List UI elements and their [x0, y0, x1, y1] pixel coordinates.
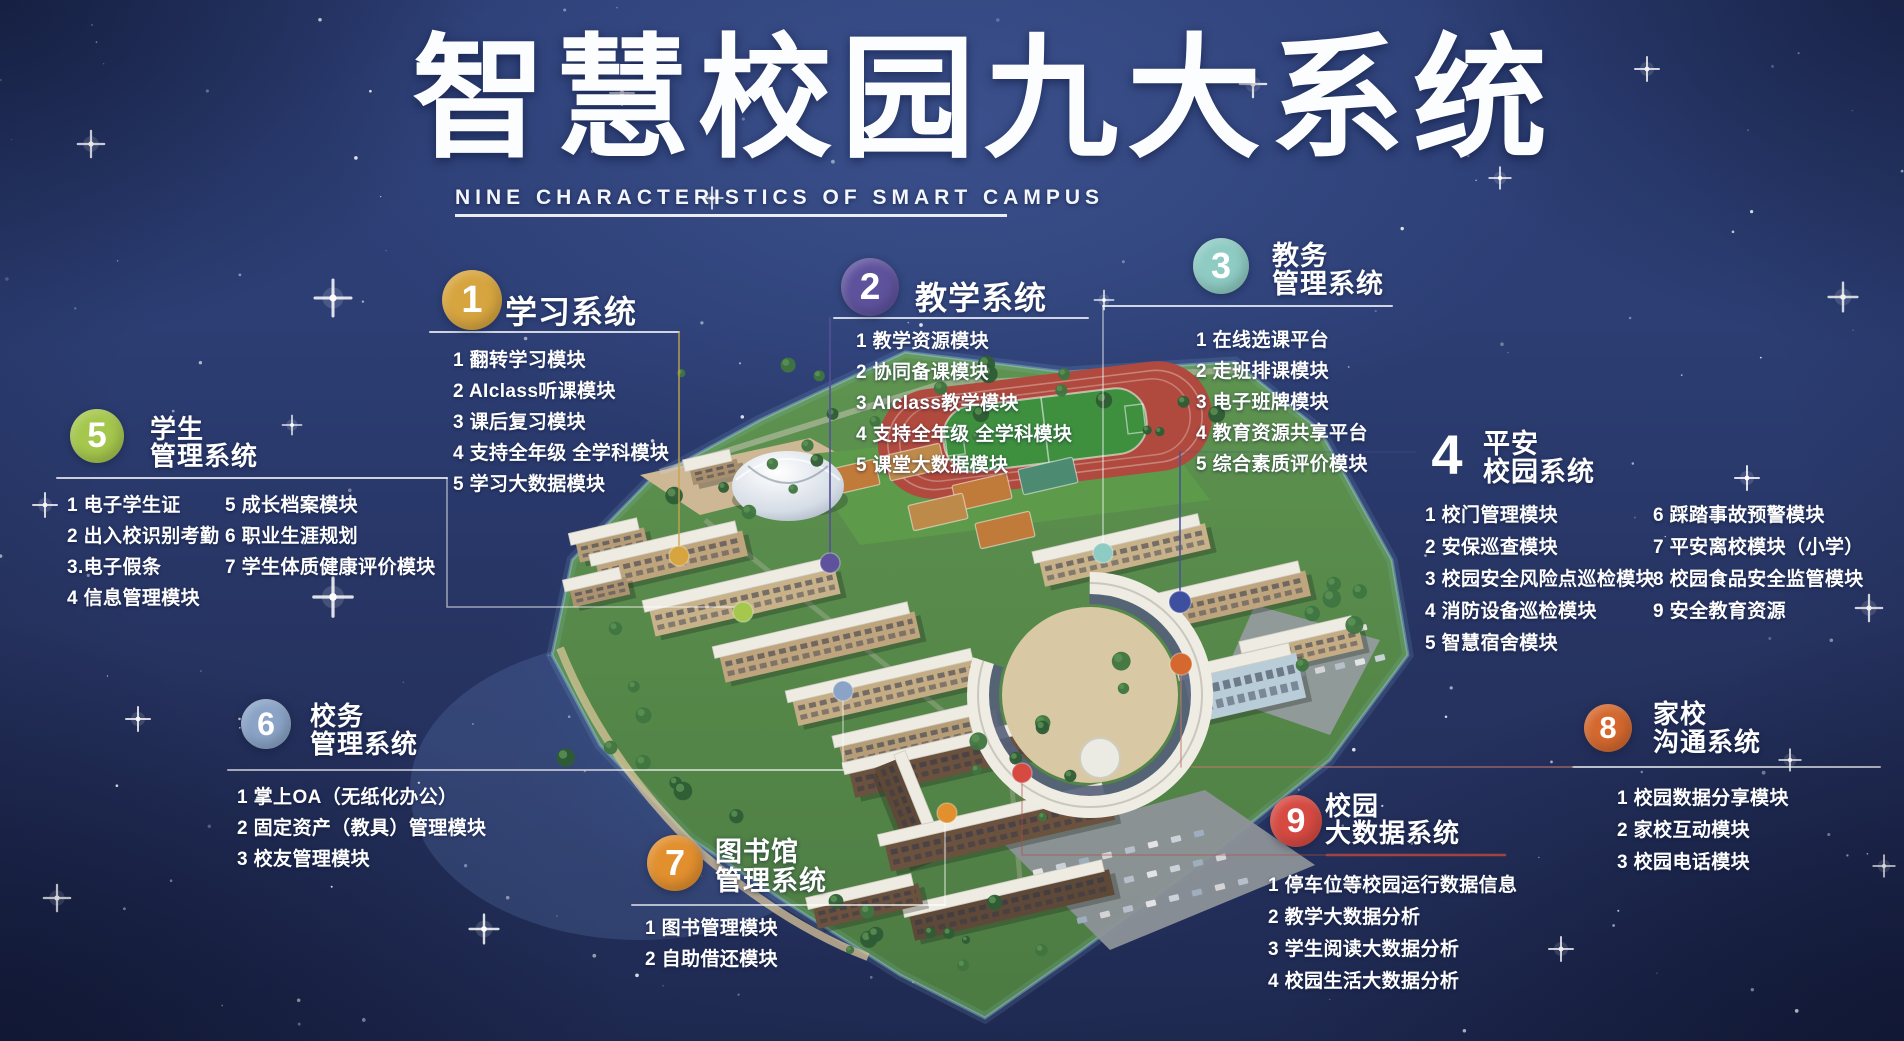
- module-item: 6 职业生涯规划: [225, 521, 436, 552]
- module-item: 8 校园食品安全监管模块: [1653, 564, 1864, 596]
- system-5-badge: 5: [70, 409, 124, 463]
- system-8-title: 家校沟通系统: [1653, 700, 1761, 756]
- module-item: 5 课堂大数据模块: [856, 450, 1072, 481]
- module-item: 7 学生体质健康评价模块: [225, 552, 436, 583]
- module-item: 3 AIclass教学模块: [856, 388, 1072, 419]
- system-7-badge: 7: [647, 835, 703, 891]
- system-7-modules: 1 图书管理模块2 自助借还模块: [645, 913, 778, 975]
- module-item: 7 平安离校模块（小学）: [1653, 532, 1864, 564]
- module-item: 2 家校互动模块: [1617, 815, 1789, 847]
- page-subtitle: NINE CHARACTERISTICS OF SMART CAMPUS: [455, 186, 1007, 210]
- system-4-title: 平安校园系统: [1483, 430, 1595, 486]
- module-item: 4 信息管理模块: [67, 583, 219, 614]
- module-item: 2 自助借还模块: [645, 944, 778, 975]
- system-6-title: 校务管理系统: [310, 702, 418, 758]
- system-1-badge: 1: [442, 270, 502, 330]
- module-item: 3 学生阅读大数据分析: [1268, 934, 1517, 966]
- module-item: 2 固定资产（教具）管理模块: [237, 813, 486, 844]
- map-marker-4: [1169, 591, 1191, 613]
- module-item: 2 协同备课模块: [856, 357, 1072, 388]
- system-8-badge: 8: [1584, 704, 1632, 752]
- map-marker-9: [1012, 763, 1032, 783]
- map-marker-7: [937, 803, 957, 823]
- module-item: 5 智慧宿舍模块: [1425, 628, 1655, 660]
- system-4-badge: 4: [1425, 424, 1469, 484]
- system-2-title: 教学系统: [915, 273, 1047, 319]
- module-item: 3 校园安全风险点巡检模块: [1425, 564, 1655, 596]
- module-item: 1 电子学生证: [67, 490, 219, 521]
- system-2-modules: 1 教学资源模块2 协同备课模块3 AIclass教学模块4 支持全年级 全学科…: [856, 326, 1072, 481]
- module-item: 2 出入校识别考勤: [67, 521, 219, 552]
- system-3-badge: 3: [1193, 238, 1249, 294]
- system-1-title: 学习系统: [505, 287, 637, 333]
- module-item: 3 校友管理模块: [237, 844, 486, 875]
- system-7-title: 图书馆管理系统: [715, 838, 827, 896]
- map-marker-3: [1093, 543, 1113, 563]
- round-hall: [1080, 738, 1120, 778]
- module-item: 2 安保巡查模块: [1425, 532, 1655, 564]
- module-item: 1 图书管理模块: [645, 913, 778, 944]
- module-item: 1 在线选课平台: [1196, 325, 1368, 356]
- system-6-badge: 6: [241, 699, 291, 749]
- module-item: 1 翻转学习模块: [453, 345, 669, 376]
- module-item: 2 教学大数据分析: [1268, 902, 1517, 934]
- subtitle-underline: [455, 214, 1007, 217]
- map-marker-6: [833, 681, 853, 701]
- module-item: 2 AIclass听课模块: [453, 376, 669, 407]
- module-item: 3 电子班牌模块: [1196, 387, 1368, 418]
- module-item: 9 安全教育资源: [1653, 596, 1864, 628]
- system-4-modules-right: 6 踩踏事故预警模块7 平安离校模块（小学）8 校园食品安全监管模块9 安全教育…: [1653, 500, 1864, 628]
- module-item: 6 踩踏事故预警模块: [1653, 500, 1864, 532]
- smart-campus-poster: 智慧校园九大系统 NINE CHARACTERISTICS OF SMART C…: [0, 0, 1904, 1041]
- module-item: 4 消防设备巡检模块: [1425, 596, 1655, 628]
- module-item: 1 掌上OA（无纸化办公）: [237, 782, 486, 813]
- system-5-modules-right: 5 成长档案模块6 职业生涯规划7 学生体质健康评价模块: [225, 490, 436, 583]
- system-1-modules: 1 翻转学习模块2 AIclass听课模块3 课后复习模块4 支持全年级 全学科…: [453, 345, 669, 500]
- module-item: 5 综合素质评价模块: [1196, 449, 1368, 480]
- module-item: 3 校园电话模块: [1617, 847, 1789, 879]
- module-item: 4 支持全年级 全学科模块: [453, 438, 669, 469]
- system-3-title: 教务管理系统: [1272, 242, 1384, 298]
- module-item: 2 走班排课模块: [1196, 356, 1368, 387]
- system-5-modules-left: 1 电子学生证2 出入校识别考勤3.电子假条4 信息管理模块: [67, 490, 219, 614]
- module-item: 1 停车位等校园运行数据信息: [1268, 870, 1517, 902]
- module-item: 4 支持全年级 全学科模块: [856, 419, 1072, 450]
- system-8-modules: 1 校园数据分享模块2 家校互动模块3 校园电话模块: [1617, 783, 1789, 879]
- module-item: 5 学习大数据模块: [453, 469, 669, 500]
- system-9-badge: 9: [1270, 795, 1322, 847]
- map-marker-5: [733, 602, 753, 622]
- map-marker-2: [820, 553, 840, 573]
- module-item: 5 成长档案模块: [225, 490, 436, 521]
- module-item: 3 课后复习模块: [453, 407, 669, 438]
- system-5-title: 学生管理系统: [150, 416, 258, 470]
- module-item: 1 教学资源模块: [856, 326, 1072, 357]
- module-item: 4 教育资源共享平台: [1196, 418, 1368, 449]
- map-marker-8: [1170, 653, 1192, 675]
- system-6-modules: 1 掌上OA（无纸化办公）2 固定资产（教具）管理模块3 校友管理模块: [237, 782, 486, 875]
- system-4-modules-left: 1 校门管理模块2 安保巡查模块3 校园安全风险点巡检模块4 消防设备巡检模块5…: [1425, 500, 1655, 660]
- system-9-title: 校园大数据系统: [1325, 793, 1460, 847]
- module-item: 1 校园数据分享模块: [1617, 783, 1789, 815]
- module-item: 3.电子假条: [67, 552, 219, 583]
- module-item: 4 校园生活大数据分析: [1268, 966, 1517, 998]
- system-9-modules: 1 停车位等校园运行数据信息2 教学大数据分析3 学生阅读大数据分析4 校园生活…: [1268, 870, 1517, 998]
- system-3-modules: 1 在线选课平台2 走班排课模块3 电子班牌模块4 教育资源共享平台5 综合素质…: [1196, 325, 1368, 480]
- page-title: 智慧校园九大系统: [412, 34, 1502, 166]
- system-2-badge: 2: [841, 258, 899, 316]
- map-marker-1: [669, 546, 689, 566]
- module-item: 1 校门管理模块: [1425, 500, 1655, 532]
